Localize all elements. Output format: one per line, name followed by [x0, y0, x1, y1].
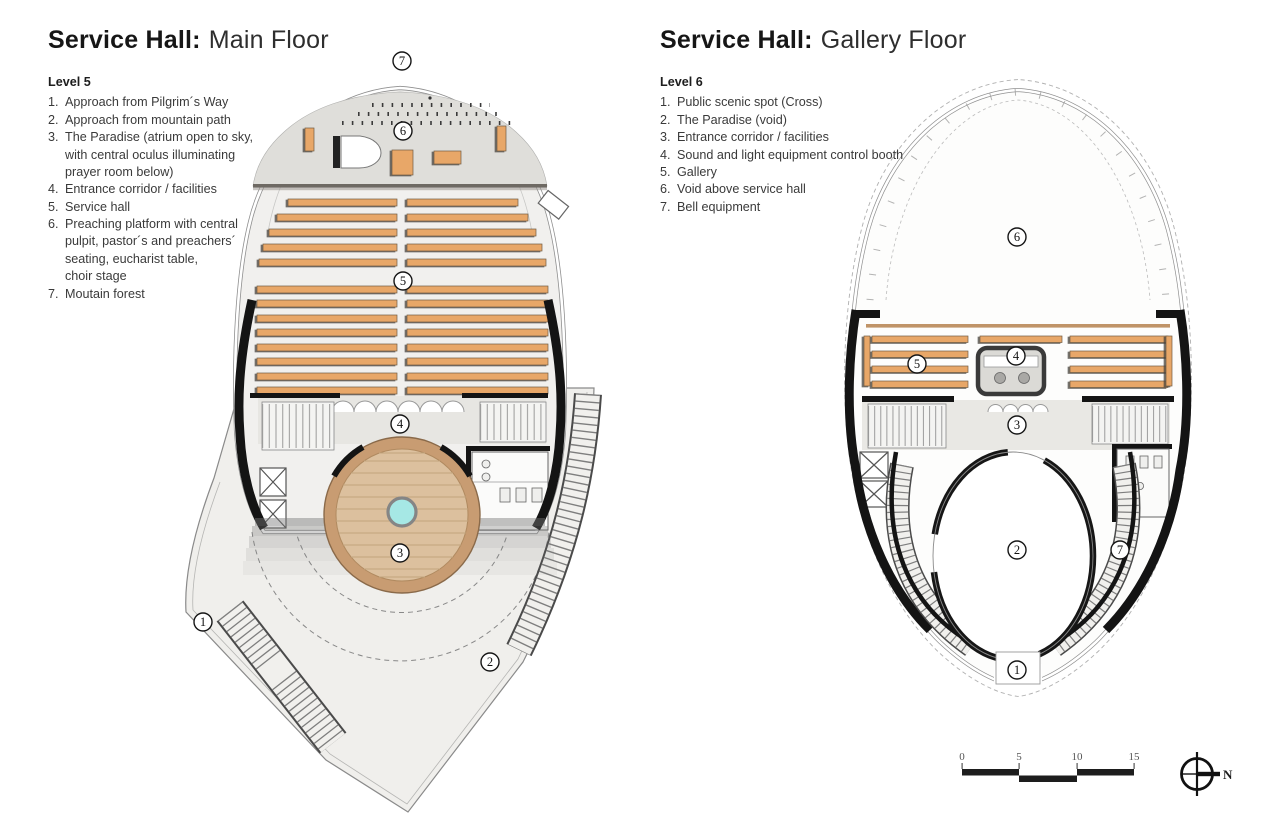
- svg-text:4: 4: [397, 417, 404, 431]
- svg-text:4: 4: [1013, 349, 1020, 363]
- callout-7: 7: [393, 52, 411, 70]
- svg-text:6: 6: [400, 124, 406, 138]
- callout-2: 2: [481, 653, 499, 671]
- callout-3: 3: [391, 544, 409, 562]
- legend-item: 1.Public scenic spot (Cross): [660, 94, 960, 111]
- legend-item: 6.Void above service hall: [660, 181, 960, 198]
- legend-item: 2.Approach from mountain path: [48, 112, 300, 129]
- oculus: [388, 498, 416, 526]
- stairwell-right: [480, 402, 546, 442]
- svg-text:5: 5: [914, 357, 920, 371]
- svg-text:10: 10: [1072, 751, 1084, 763]
- legend-item: 7.Bell equipment: [660, 199, 960, 216]
- svg-text:1: 1: [1014, 663, 1020, 677]
- legend-item: 3.Entrance corridor / facilities: [660, 129, 960, 146]
- svg-text:3: 3: [1014, 418, 1020, 432]
- main-floor-legend: Level 5 1.Approach from Pilgrim´s Way 2.…: [48, 74, 300, 303]
- north-arrow: N: [1181, 752, 1233, 796]
- svg-text:2: 2: [487, 655, 493, 669]
- legend-item: 5.Gallery: [660, 164, 960, 181]
- svg-text:7: 7: [1117, 543, 1123, 557]
- svg-text:2: 2: [1014, 543, 1020, 557]
- callout-6: 6: [1008, 228, 1026, 246]
- title-light: Gallery Floor: [821, 26, 967, 54]
- callout-1: 1: [194, 613, 212, 631]
- stairwell-left: [262, 402, 334, 450]
- legend-item: 4.Entrance corridor / facilities: [48, 181, 300, 198]
- callout-4: 4: [1007, 347, 1025, 365]
- title-bold: Service Hall:: [48, 26, 201, 54]
- legend-item: 5.Service hall: [48, 199, 300, 216]
- title-light: Main Floor: [209, 26, 329, 54]
- callout-6: 6: [394, 122, 412, 140]
- main-floor-title: Service Hall:Main Floor: [48, 26, 329, 55]
- gallery-floor-legend: Level 6 1.Public scenic spot (Cross) 2.T…: [660, 74, 960, 216]
- svg-text:6: 6: [1014, 230, 1020, 244]
- legend-item: 3.The Paradise (atrium open to sky, with…: [48, 129, 300, 181]
- platform-side-seat-left: [305, 128, 314, 151]
- pulpit: [392, 150, 413, 175]
- legend-level: Level 6: [660, 74, 960, 91]
- legend-item: 7.Moutain forest: [48, 286, 300, 303]
- legend-item: 2.The Paradise (void): [660, 112, 960, 129]
- gallery-floor-title: Service Hall:Gallery Floor: [660, 26, 966, 55]
- stairwell-right: [1092, 404, 1168, 444]
- legend-item: 4.Sound and light equipment control boot…: [660, 147, 960, 164]
- choir-center-dot: [428, 96, 431, 99]
- callout-4: 4: [391, 415, 409, 433]
- svg-text:15: 15: [1129, 751, 1141, 763]
- legend-item: 1.Approach from Pilgrim´s Way: [48, 94, 300, 111]
- svg-text:3: 3: [397, 546, 403, 560]
- scale-bar: 0 5 10 15: [959, 751, 1140, 782]
- callout-5: 5: [908, 355, 926, 373]
- floor-plan-sheet: 1 2 3 4 5 6 7: [0, 0, 1280, 832]
- svg-text:7: 7: [399, 54, 405, 68]
- paradise-deck: [324, 437, 480, 593]
- platform-side-seat-right: [497, 126, 506, 151]
- svg-text:5: 5: [1016, 751, 1022, 763]
- svg-text:5: 5: [400, 274, 406, 288]
- callout-1: 1: [1008, 661, 1026, 679]
- callout-3: 3: [1008, 416, 1026, 434]
- title-bold: Service Hall:: [660, 26, 813, 54]
- north-label: N: [1223, 767, 1233, 782]
- svg-text:0: 0: [959, 751, 965, 763]
- eucharist-table: [434, 151, 461, 164]
- legend-item: 6.Preaching platform with central pulpit…: [48, 216, 300, 286]
- svg-text:1: 1: [200, 615, 206, 629]
- callout-5: 5: [394, 272, 412, 290]
- callout-7: 7: [1111, 541, 1129, 559]
- legend-level: Level 5: [48, 74, 300, 91]
- callout-2: 2: [1008, 541, 1026, 559]
- stairwell-left: [868, 404, 946, 448]
